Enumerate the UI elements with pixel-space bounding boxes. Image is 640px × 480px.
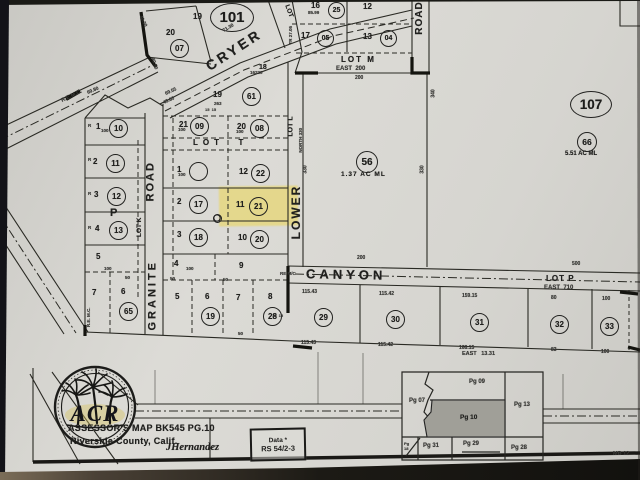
- dim-east-710: EAST 710: [544, 285, 573, 291]
- lot-number-4-left: 4: [95, 225, 99, 233]
- dim-1515-a: 15 15: [205, 108, 216, 112]
- lot-number-2-mid: 2: [177, 198, 181, 206]
- lot-number-12-top: 12: [363, 3, 372, 11]
- dim-north-330: NORTH 330: [299, 125, 304, 155]
- dim-east-1331: EAST 13.31: [462, 352, 495, 358]
- label-remc-canyon: RE M/C: [280, 272, 296, 277]
- lot-number-11-right: 11: [236, 201, 244, 209]
- lot-label-p: LOT P: [546, 275, 575, 283]
- dim-100-d: 100: [236, 130, 244, 135]
- dim-263: 263: [214, 102, 222, 107]
- lot-label-t: LOT T: [193, 139, 248, 147]
- map-title: ASSESSOR'S MAP BK545 PG.10: [68, 424, 215, 433]
- dim-200-lotm: 200: [355, 76, 363, 81]
- parcel-circle-29: 29: [314, 308, 333, 327]
- parcel-circle-17: 17: [189, 195, 208, 214]
- parcel-circle-32: 32: [550, 315, 569, 334]
- parcel-circle-07: 07: [170, 39, 189, 58]
- inset-page-09: Pg 09: [469, 379, 485, 385]
- dim-east-200: EAST 200: [336, 66, 365, 72]
- dim-tr2705: TR 27.05: [289, 19, 294, 51]
- dim-500: 500: [572, 262, 580, 267]
- dim-100-f: 100: [186, 267, 194, 272]
- assessor-map-photo: ACR 07 101 25 05 04 61 09 08 10 11 12 13…: [0, 0, 640, 480]
- lot-number-5-left: 5: [96, 253, 100, 261]
- parcel-circle-05: 05: [317, 30, 334, 47]
- lot-label-l: LOT L: [288, 114, 295, 140]
- row-letter-r1: R: [88, 124, 91, 129]
- dim-8599: 85.99: [308, 11, 319, 16]
- inset-page-10: Pg 10: [460, 415, 477, 422]
- parcel-circle-16: [189, 162, 208, 181]
- data-reference-box: Data * RS 54/2-3: [250, 427, 307, 461]
- dim-100-g: 100: [602, 297, 610, 302]
- row-letter-r4: R: [88, 226, 91, 231]
- inset-page-18: Pg 18: [404, 442, 414, 452]
- lot-number-1-left: 1: [96, 123, 100, 131]
- road-label-granite-road: ROAD: [146, 162, 157, 202]
- lot-number-6-left: 6: [121, 288, 125, 296]
- lot-number-12-right: 12: [239, 168, 248, 176]
- dim-11542-bottom: 115.42: [378, 343, 393, 348]
- logo-seal: ACR: [55, 367, 135, 447]
- lot-number-3-mid: 3: [177, 231, 181, 239]
- row-letter-r3: R: [88, 192, 91, 197]
- parcel-circle-18: 18: [189, 228, 208, 247]
- lot-number-13-top: 13: [363, 33, 372, 41]
- lot-number-19-top: 19: [193, 13, 202, 21]
- inset-page-07: Pg 07: [409, 398, 425, 404]
- dim-340: 340: [432, 86, 437, 102]
- lot-number-7-left: 7: [92, 289, 96, 297]
- area-parcel-56: 1.37 AC ML: [341, 172, 386, 179]
- parcel-circle-30: 30: [386, 310, 405, 329]
- data-box-value: RS 54/2-3: [261, 443, 295, 453]
- parcel-circle-13: 13: [109, 221, 128, 240]
- lot-number-4-mid: 4: [174, 260, 178, 268]
- parcel-circle-31: 31: [470, 313, 489, 332]
- inset-page-28: Pg 28: [511, 445, 527, 451]
- row-letter-r2: R: [88, 158, 91, 163]
- lot-number-6-mid: 6: [205, 293, 209, 301]
- parcel-circle-107: 107: [570, 91, 612, 118]
- dim-50-a: 50: [125, 276, 130, 281]
- dim-200-canyon: 200: [357, 256, 365, 261]
- dim-11543-bottom: 115.43: [301, 341, 316, 346]
- parcel-circle-22: 22: [251, 164, 270, 183]
- parcel-circle-09: 09: [190, 117, 209, 136]
- lot-label-k: LOT K: [137, 214, 144, 240]
- drafter-signature: JHernandez: [166, 443, 219, 454]
- dim-16815: 168.15: [459, 346, 474, 351]
- lot-number-7-mid: 7: [236, 294, 240, 302]
- parcel-circle-65: 65: [119, 302, 138, 321]
- parcel-circle-25: 25: [328, 2, 345, 19]
- inset-page-29: Pg 29: [463, 441, 479, 447]
- road-label-canyon: CANYON: [306, 267, 387, 281]
- lot-number-2-left: 2: [93, 158, 97, 166]
- road-label-granite: GRANITE: [148, 261, 159, 331]
- lot-number-16-top: 16: [311, 2, 320, 10]
- dim-16220: 16220: [250, 71, 263, 76]
- dim-330-west: 330: [304, 162, 309, 178]
- dim-100-c: 100: [178, 173, 186, 178]
- dim-50-c: 50: [223, 278, 228, 283]
- dim-11542-top: 115.42: [379, 292, 394, 297]
- road-label-lower: LOWER: [290, 184, 302, 240]
- map-subtitle: Riverside County, Calif.: [70, 437, 178, 446]
- lot-number-8-mid: 8: [268, 293, 272, 301]
- inset-page-13: Pg 13: [514, 402, 530, 408]
- lot-number-9-mid: 9: [239, 262, 243, 270]
- lot-number-10-right: 10: [238, 234, 247, 242]
- lot-number-3-left: 3: [94, 191, 98, 199]
- road-label-road-top: ROAD: [415, 0, 425, 36]
- parcel-circle-12: 12: [107, 187, 126, 206]
- dim-11543-top: 115.43: [302, 290, 317, 295]
- dim-83: 83: [551, 348, 557, 353]
- parcel-circle-20: 20: [250, 230, 269, 249]
- dim-100-a: 100: [101, 129, 109, 134]
- lot-number-20-top: 20: [166, 29, 175, 37]
- inset-page-31: Pg 31: [423, 443, 439, 449]
- parcel-circle-66: 66: [577, 132, 597, 152]
- lot-number-19-61: 19: [213, 91, 222, 99]
- dim-1515-b: 15 15: [272, 314, 283, 318]
- map-linework: ACR: [0, 0, 640, 480]
- parcel-circle-56: 56: [356, 151, 378, 173]
- corner-marker-circle: [213, 214, 222, 223]
- label-remc-left: R.E. M.C.: [87, 303, 92, 331]
- dim-50-d: 50: [238, 332, 243, 337]
- lot-label-m: LOT M: [341, 56, 376, 64]
- parcel-circle-11: 11: [106, 154, 125, 173]
- parcel-circle-61: 61: [242, 87, 261, 106]
- dim-100-h: 100: [601, 350, 609, 355]
- dim-80: 80: [551, 296, 557, 301]
- parcel-circle-10: 10: [109, 119, 128, 138]
- parcel-circle-21: 21: [249, 197, 268, 216]
- parcel-circle-04: 04: [380, 30, 397, 47]
- parcel-circle-19: 19: [201, 307, 220, 326]
- area-parcel-66: 5.51 AC ML: [565, 151, 597, 157]
- inset-mb-ref: MB 12: [613, 452, 629, 458]
- parcel-circle-08: 08: [250, 119, 269, 138]
- lot-number-5-mid: 5: [175, 293, 179, 301]
- dim-100-b: 100: [178, 128, 186, 133]
- dim-330-east: 330: [421, 162, 426, 178]
- dim-100-e: 100: [104, 267, 112, 272]
- parcel-circle-33: 33: [600, 317, 619, 336]
- dim-50-b: 50: [170, 277, 175, 282]
- block-letter-p: P: [110, 208, 117, 219]
- lot-number-17-top: 17: [301, 32, 310, 40]
- dim-15915: 159.15: [462, 294, 477, 299]
